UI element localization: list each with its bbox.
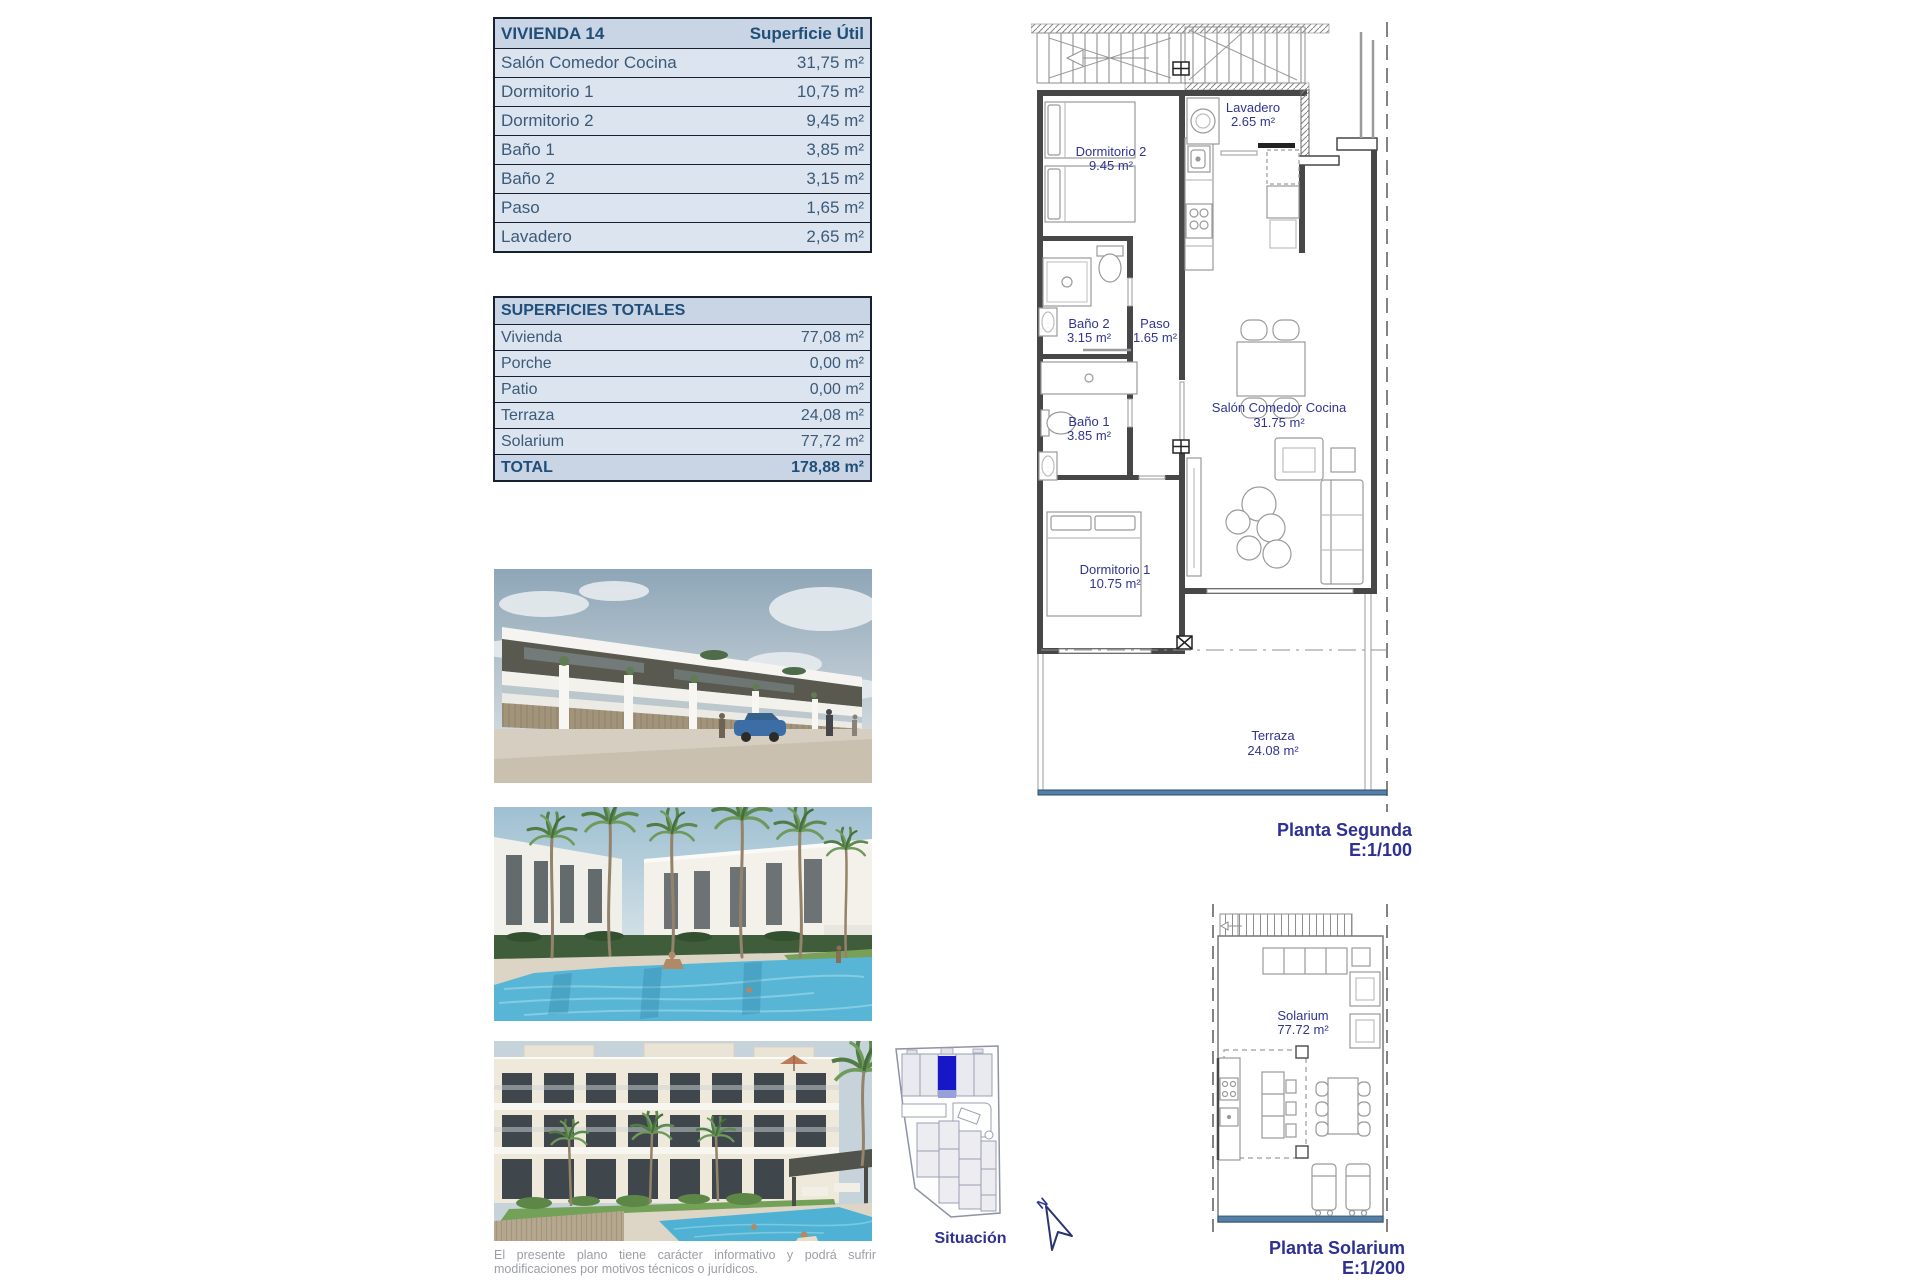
stairs xyxy=(1220,914,1352,936)
row-label: Terraza xyxy=(495,407,801,425)
area-table-vivienda: VIVIENDA 14 Superficie Útil Salón Comedo… xyxy=(493,17,872,253)
room-area-lavadero: 2.65 m² xyxy=(1231,114,1276,129)
render-photo-apartments xyxy=(494,1041,872,1241)
table-value-header: Superficie Útil xyxy=(750,24,870,44)
row-value: 0,00 m² xyxy=(810,355,870,373)
room-label-terraza: Terraza xyxy=(1251,728,1295,743)
solarium-rail xyxy=(1218,1216,1383,1222)
table-title: VIVIENDA 14 xyxy=(495,24,750,44)
room-label-paso: Paso xyxy=(1140,316,1170,331)
row-value: 0,00 m² xyxy=(810,381,870,399)
row-value: 2,65 m² xyxy=(806,227,870,247)
table-header-row: SUPERFICIES TOTALES xyxy=(495,298,870,324)
building xyxy=(494,1043,839,1203)
room-label-salon: Salón Comedor Cocina xyxy=(1212,400,1347,415)
table-row: Solarium77,72 m² xyxy=(495,428,870,454)
table-row: Baño 23,15 m² xyxy=(495,164,870,193)
render-photo-terraced-houses xyxy=(494,569,872,783)
terrace-rail xyxy=(1038,790,1387,795)
row-value: 1,65 m² xyxy=(806,198,870,218)
page: { "tables": { "vivienda": { "title": "VI… xyxy=(0,0,1920,1280)
highlighted-unit xyxy=(938,1056,956,1090)
room-area-bano1: 3.85 m² xyxy=(1067,428,1112,443)
row-label: Patio xyxy=(495,381,810,399)
room-area-dormitorio1: 10.75 m² xyxy=(1089,576,1141,591)
row-label: Baño 1 xyxy=(495,140,806,160)
row-value: 77,72 m² xyxy=(801,433,870,451)
table-row: Paso1,65 m² xyxy=(495,193,870,222)
solarium-caption-scale: E:1/200 xyxy=(1205,1258,1405,1278)
washing-machine xyxy=(1187,98,1219,144)
salon-furniture xyxy=(1187,320,1363,584)
table-row: Dormitorio 110,75 m² xyxy=(495,77,870,106)
table-row: Porche0,00 m² xyxy=(495,350,870,376)
table-row: Salón Comedor Cocina31,75 m² xyxy=(495,48,870,77)
north-arrow-icon: N xyxy=(1032,1192,1087,1267)
row-value: 77,08 m² xyxy=(801,329,870,347)
row-label: Baño 2 xyxy=(495,169,806,189)
render-photo-pool xyxy=(494,807,872,1021)
unit-row xyxy=(902,1048,992,1098)
table-row: Terraza24,08 m² xyxy=(495,402,870,428)
row-value: 178,88 m² xyxy=(791,459,870,477)
room-label-dormitorio1: Dormitorio 1 xyxy=(1080,562,1151,577)
row-label: Porche xyxy=(495,355,810,373)
room-area-salon: 31.75 m² xyxy=(1253,415,1305,430)
floorplan-caption-scale: E:1/100 xyxy=(1212,840,1412,860)
row-value: 31,75 m² xyxy=(797,53,870,73)
row-label: Dormitorio 1 xyxy=(495,82,797,102)
row-label: Solarium xyxy=(495,433,801,451)
floorplan-planta-segunda: Dormitorio 2 9.45 m² Lavadero 2.65 m² Ba… xyxy=(1031,10,1421,820)
row-value: 3,15 m² xyxy=(806,169,870,189)
row-label: Dormitorio 2 xyxy=(495,111,806,131)
highlighted-unit-terrace xyxy=(938,1090,956,1098)
row-value: 24,08 m² xyxy=(801,407,870,425)
room-area-paso: 1.65 m² xyxy=(1133,330,1178,345)
room-label-bano2: Baño 2 xyxy=(1068,316,1109,331)
room-label-lavadero: Lavadero xyxy=(1226,100,1280,115)
stairs xyxy=(1031,24,1329,90)
table-row: Vivienda77,08 m² xyxy=(495,324,870,350)
row-label: TOTAL xyxy=(495,459,791,477)
totals-table: SUPERFICIES TOTALES Vivienda77,08 m² Por… xyxy=(493,296,872,482)
table-row: Patio0,00 m² xyxy=(495,376,870,402)
row-label: Salón Comedor Cocina xyxy=(495,53,797,73)
room-area-terraza: 24.08 m² xyxy=(1247,743,1299,758)
room-label-solarium: Solarium xyxy=(1277,1008,1328,1023)
room-area-dormitorio2: 9.45 m² xyxy=(1089,158,1134,173)
floorplan-caption: Planta Segunda E:1/100 xyxy=(1212,820,1412,860)
room-area-solarium: 77.72 m² xyxy=(1277,1022,1329,1037)
table-header-row: VIVIENDA 14 Superficie Útil xyxy=(495,19,870,48)
situacion-map xyxy=(893,1045,1005,1225)
row-label: Vivienda xyxy=(495,329,801,347)
table-row: Baño 13,85 m² xyxy=(495,135,870,164)
row-value: 10,75 m² xyxy=(797,82,870,102)
row-label: Lavadero xyxy=(495,227,806,247)
table-row: Dormitorio 29,45 m² xyxy=(495,106,870,135)
bano1-fixtures xyxy=(1039,362,1137,534)
table-total-row: TOTAL178,88 m² xyxy=(495,454,870,480)
solarium-caption: Planta Solarium E:1/200 xyxy=(1205,1238,1405,1278)
disclaimer-text: El presente plano tiene carácter informa… xyxy=(494,1249,876,1276)
solarium-caption-title: Planta Solarium xyxy=(1205,1238,1405,1258)
row-value: 9,45 m² xyxy=(806,111,870,131)
solarium-plan: Solarium 77.72 m² xyxy=(1208,902,1403,1247)
kitchen xyxy=(1185,138,1299,270)
terraza xyxy=(1038,594,1387,795)
row-value: 3,85 m² xyxy=(806,140,870,160)
room-label-bano1: Baño 1 xyxy=(1068,414,1109,429)
row-label: Paso xyxy=(495,198,806,218)
table-row: Lavadero2,65 m² xyxy=(495,222,870,251)
floorplan-caption-title: Planta Segunda xyxy=(1212,820,1412,840)
room-area-bano2: 3.15 m² xyxy=(1067,330,1112,345)
situacion-caption: Situación xyxy=(918,1230,1023,1248)
table-title: SUPERFICIES TOTALES xyxy=(495,302,870,320)
room-label-dormitorio2: Dormitorio 2 xyxy=(1076,144,1147,159)
